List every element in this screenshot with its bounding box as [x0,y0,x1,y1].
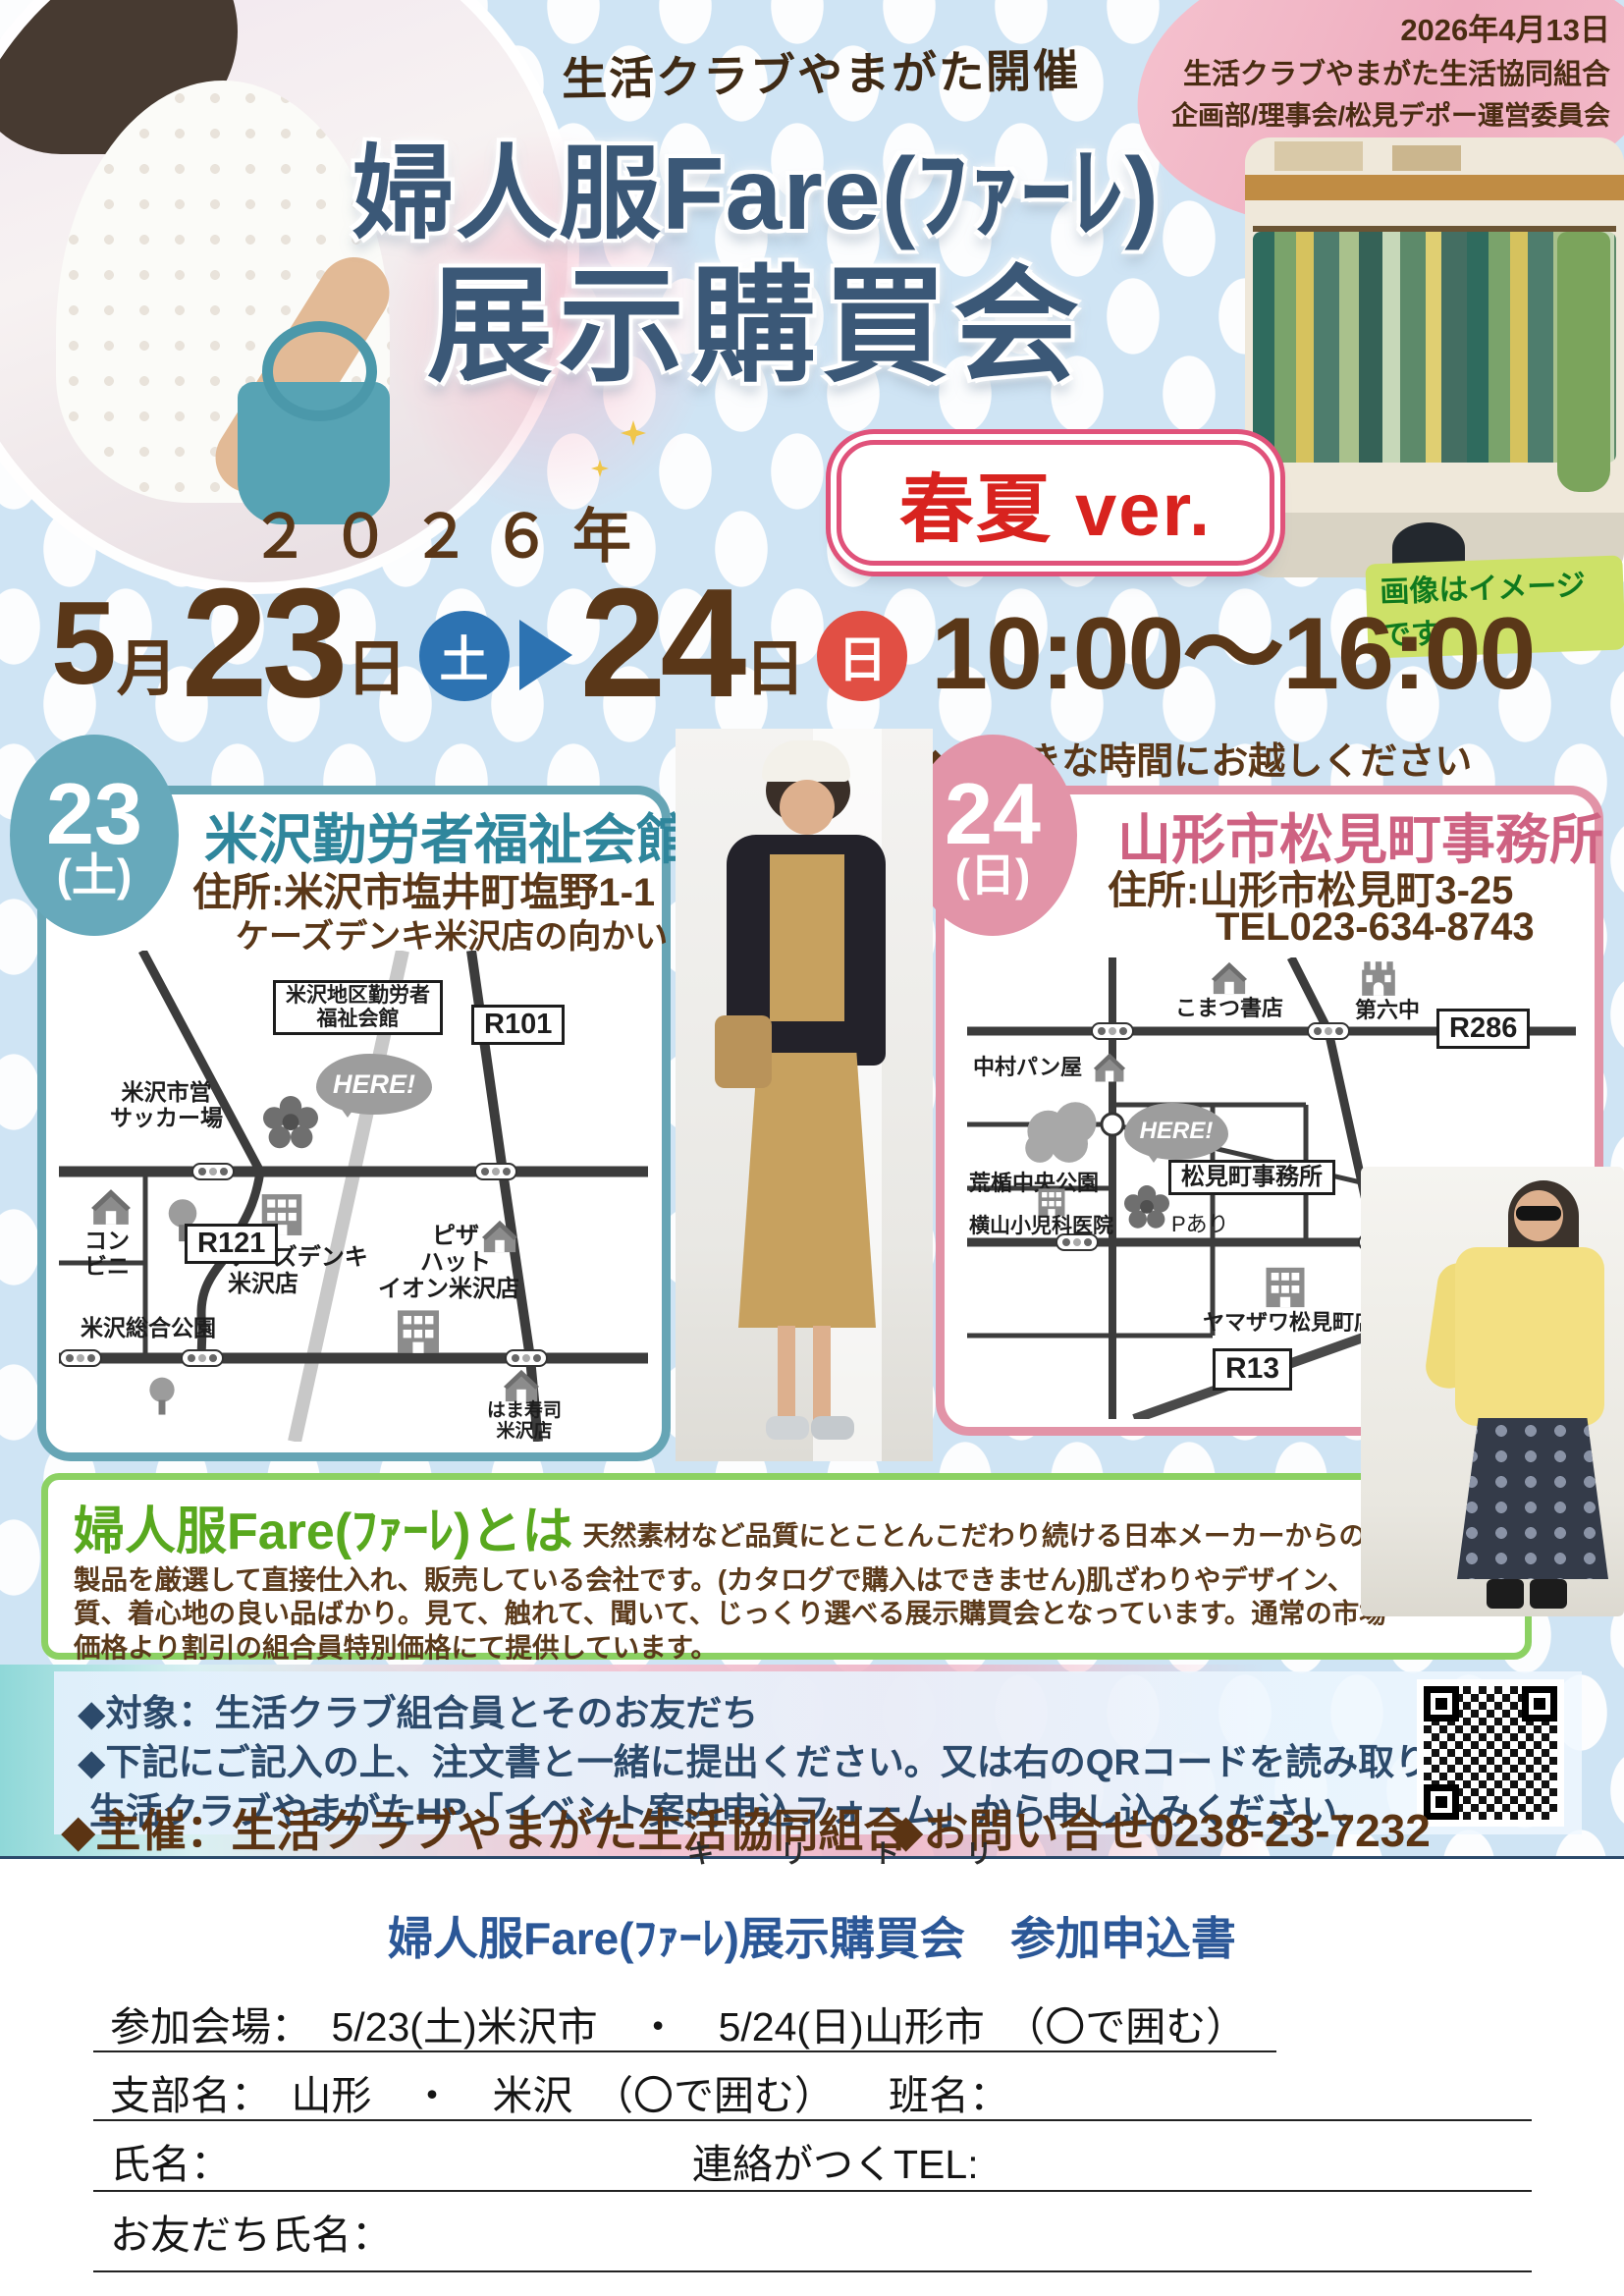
map-label-matsumicho-office: 松見町事務所 [1168,1160,1335,1195]
form-field-friend-name[interactable]: お友だち氏名： [110,2202,392,2261]
map-label-facility: 米沢地区勤労者 福祉会館 [273,980,443,1035]
building-icon [1034,1183,1069,1219]
day-number: 24 [945,773,1041,855]
day-of-week: (土) [57,854,133,898]
qr-finder [1424,1686,1459,1722]
house-icon [503,1367,540,1404]
apply-instruction-line: ◆下記にご記入の上、注文書と一緒に提出ください。又は右のQRコードを読み取り、 [78,1732,1466,1785]
map-label-route286: R286 [1436,1009,1530,1049]
model-leg [778,1326,795,1420]
floral-skirt [1457,1418,1608,1579]
start-day: 23 [182,555,343,733]
venue-landmark-note: ケーズデンキ米沢店の向かい [236,909,668,957]
shoulder-bag [715,1015,772,1088]
building-icon [385,1302,452,1357]
apply-target-line: ◆対象：生活クラブ組合員とそのお友だち [78,1683,758,1736]
about-title: 婦人服Fare(ﾌｧｰﾚ)とは [74,1503,572,1560]
event-dates: 5 月 23 日 土 24 日 日 10:00～16:00 [51,550,1602,737]
month-unit: 月 [117,619,178,707]
sunday-badge: 日 [817,611,907,701]
form-underline [93,2119,1532,2121]
traffic-signal-icon [59,1349,102,1367]
map-label-convenience-store: コン ビニ [84,1229,130,1280]
qr-code [1417,1679,1564,1827]
traffic-signal-icon [181,1349,224,1367]
host-note: 生活クラブやまがた開催 [561,34,1080,108]
map-label-parking: Pあり [1171,1213,1229,1237]
clothes-rack-photo [1245,137,1624,577]
map-label-komatsu-books: こまつ書店 [1175,997,1283,1021]
house-icon [481,1218,518,1255]
shelf-box [1274,141,1363,171]
form-field-tel[interactable]: 連絡がつくTEL: [692,2131,979,2190]
traffic-signal-icon [1307,1022,1350,1040]
black-shoe [1530,1579,1567,1609]
house-icon [1093,1051,1126,1084]
map-label-soccer-field: 米沢市営 サッカー場 [110,1080,223,1131]
day-circle-23: 23 (土) [10,735,179,936]
traffic-signal-icon [1091,1022,1134,1040]
map-label-hamazushi: はま寿司 米沢店 [487,1400,562,1442]
map-label-route101: R101 [471,1005,565,1045]
sneaker [811,1416,854,1440]
day-circle-24: 24 (日) [908,735,1077,936]
yellow-blouse [1455,1247,1604,1426]
model-face [780,780,835,835]
model-photo-right [1361,1167,1624,1616]
event-title: 婦人服Fare(ﾌｧｰﾚ) 展示購買会 [226,136,1286,400]
green-dress [1557,232,1610,492]
tree-icon [139,1373,185,1418]
form-underline [93,2190,1532,2192]
sneaker [766,1416,809,1440]
day-of-week: (日) [955,854,1031,898]
khaki-dress-top [770,854,844,1021]
school-icon [1358,957,1399,999]
season-version-badge: 春夏 ver. [837,440,1274,566]
shelf-box [1392,145,1461,171]
cut-here-label: キ リ ト リ [687,1832,1022,1871]
saturday-badge: 土 [419,611,510,701]
qr-finder [1522,1686,1557,1722]
event-title-line1: 婦人服Fare(ﾌｧｰﾚ) [226,136,1286,254]
house-icon [90,1186,132,1228]
form-underline [93,2270,1532,2272]
flower-icon [263,1096,318,1151]
qr-pattern [1424,1686,1557,1820]
about-fare-box: 婦人服Fare(ﾌｧｰﾚ)とは天然素材など品質にとことんこだわり続ける日本メーカ… [41,1473,1532,1660]
traffic-signal-icon [505,1349,548,1367]
traffic-signal-icon [191,1163,235,1180]
event-title-line2: 展示購買会 [226,254,1286,400]
model-leg [813,1326,831,1420]
form-field-name[interactable]: 氏名： [110,2131,231,2190]
arrow-right-icon [519,620,572,690]
map-yonezawa: 米沢地区勤労者 福祉会館 HERE! R101 米沢市営 サッカー場 コン ビニ… [59,951,648,1442]
day-unit: 日 [347,619,407,707]
wooden-shelf [1245,175,1624,200]
khaki-dress-skirt [738,1053,876,1328]
end-day: 24 [580,555,741,733]
map-label-yamazawa: ヤマザワ松見町店 [1203,1311,1376,1336]
park-trees-icon [1021,1097,1105,1166]
venue-phone: TEL023-634-8743 [1216,905,1535,950]
form-field-group[interactable]: 班名： [889,2062,1009,2121]
application-form-title: 婦人服Fare(ﾌｧｰﾚ)展示購買会 参加申込書 [0,1903,1624,1968]
form-field-branch[interactable]: 支部名： 山形 ・ 米沢 （〇で囲む） [110,2062,835,2121]
map-label-nakamura-bakery: 中村パン屋 [973,1056,1082,1080]
black-shoe [1487,1579,1524,1609]
map-label-dairoku-junior-high: 第六中 [1355,999,1420,1023]
traffic-signal-icon [474,1163,517,1180]
day-number: 23 [46,773,142,855]
map-label-aeon: イオン米沢店 [378,1277,519,1303]
flyer-poster: 2026年4月13日 生活クラブやまがた生活協同組合 企画部/理事会/松見デポー… [0,0,1624,2296]
month-number: 5 [51,575,113,711]
form-field-venue[interactable]: 参加会場： 5/23(土)米沢市 ・ 5/24(日)山形市 （〇で囲む） [110,1994,1246,2052]
map-label-yokoyama-clinic: 横山小児科医院 [969,1215,1113,1238]
building-icon [1257,1260,1314,1311]
flower-icon [1124,1185,1169,1230]
house-icon [1211,959,1248,997]
form-underline [93,2050,1276,2052]
map-label-route13: R13 [1213,1348,1292,1391]
event-time: 10:00～16:00 [931,570,1534,718]
map-label-sogo-park: 米沢総合公園 [81,1316,216,1341]
day-unit: 日 [744,619,805,707]
sunglasses [1516,1206,1561,1221]
model-photo-center [676,729,933,1461]
map-label-route121: R121 [185,1224,278,1264]
